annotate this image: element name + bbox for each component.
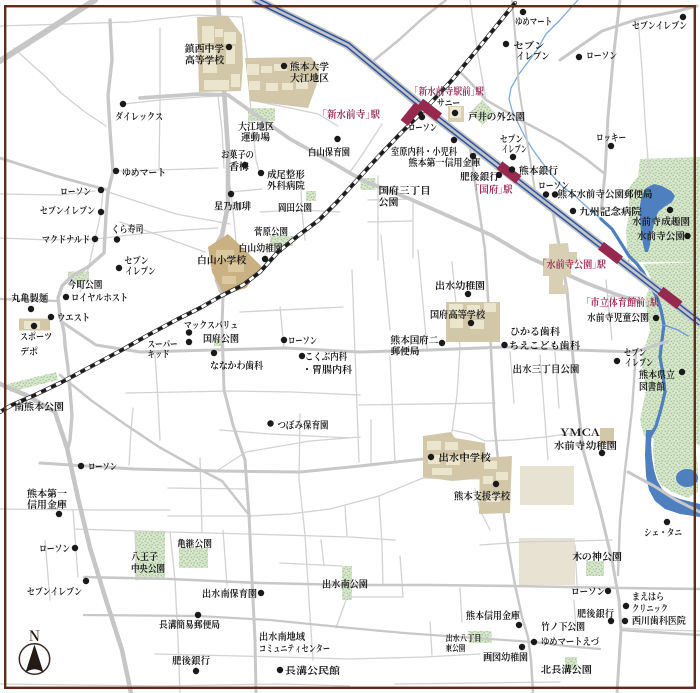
svg-text:ローソン: ローソン bbox=[571, 583, 605, 598]
svg-text:ゆめマート: ゆめマート bbox=[122, 164, 166, 179]
svg-text:｢水前寺公園｣駅: ｢水前寺公園｣駅 bbox=[542, 257, 606, 272]
svg-text:セブンイレブン: セブンイレブン bbox=[632, 17, 687, 32]
svg-text:ローソン: ローソン bbox=[39, 540, 70, 555]
svg-text:ゆめマートえづ: ゆめマートえづ bbox=[541, 633, 599, 648]
svg-text:ローソン: ローソン bbox=[60, 183, 91, 198]
svg-text:水前寺公園: 水前寺公園 bbox=[636, 228, 685, 243]
svg-text:郵便局: 郵便局 bbox=[391, 343, 420, 358]
svg-text:出水幼稚園: 出水幼稚園 bbox=[435, 277, 485, 292]
svg-text:東公園: 東公園 bbox=[446, 642, 466, 654]
svg-text:イレブン: イレブン bbox=[517, 48, 550, 63]
svg-text:西川歯科医院: 西川歯科医院 bbox=[632, 612, 686, 627]
svg-text:シェ・タニ: シェ・タニ bbox=[644, 524, 682, 539]
svg-text:長溝簡易郵便局: 長溝簡易郵便局 bbox=[158, 616, 220, 631]
svg-text:熊本信用金庫: 熊本信用金庫 bbox=[466, 607, 520, 622]
svg-text:白山保育園: 白山保育園 bbox=[308, 144, 350, 159]
svg-text:ロイヤルホスト: ロイヤルホスト bbox=[71, 289, 128, 304]
svg-text:木の神公園: 木の神公園 bbox=[572, 548, 622, 563]
svg-text:外科病院: 外科病院 bbox=[267, 177, 305, 192]
svg-text:長溝公民館: 長溝公民館 bbox=[284, 662, 340, 677]
svg-text:公園: 公園 bbox=[379, 194, 399, 209]
svg-text:スポーツ: スポーツ bbox=[20, 328, 52, 343]
svg-text:水前寺児童公園: 水前寺児童公園 bbox=[586, 309, 649, 324]
svg-text:デポ: デポ bbox=[20, 343, 38, 358]
svg-text:熊本第一信用金庫: 熊本第一信用金庫 bbox=[409, 154, 481, 169]
svg-text:香梅: 香梅 bbox=[229, 158, 249, 173]
svg-text:国府公園: 国府公園 bbox=[203, 330, 239, 345]
svg-text:イレブン: イレブン bbox=[502, 141, 527, 156]
svg-text:マクドナルド: マクドナルド bbox=[42, 231, 90, 246]
svg-text:中央公園: 中央公園 bbox=[131, 560, 165, 575]
svg-text:竹ノ下公園: 竹ノ下公園 bbox=[540, 618, 585, 633]
svg-text:つぼみ保育園: つぼみ保育園 bbox=[278, 417, 329, 432]
svg-text:N: N bbox=[29, 626, 41, 646]
svg-text:ローソン: ローソン bbox=[408, 119, 437, 134]
svg-text:図書館: 図書館 bbox=[639, 378, 665, 393]
svg-text:白山小学校: 白山小学校 bbox=[197, 252, 246, 267]
svg-text:サニー: サニー bbox=[437, 95, 460, 110]
svg-text:｢国府｣駅: ｢国府｣駅 bbox=[475, 182, 513, 197]
svg-text:キッド: キッド bbox=[148, 346, 170, 361]
svg-text:イレブン: イレブン bbox=[126, 263, 156, 278]
svg-text:熊本水前寺公園郵便局: 熊本水前寺公園郵便局 bbox=[558, 186, 653, 201]
svg-text:セブンイレブン: セブンイレブン bbox=[27, 583, 82, 598]
svg-text:菅原公園: 菅原公園 bbox=[254, 223, 288, 238]
svg-text:出水南公園: 出水南公園 bbox=[322, 576, 368, 591]
svg-text:ダイレックス: ダイレックス bbox=[115, 108, 163, 123]
svg-text:ローソン: ローソン bbox=[88, 458, 117, 473]
svg-text:出水中学校: 出水中学校 bbox=[439, 449, 491, 464]
svg-text:ローソン: ローソン bbox=[586, 47, 617, 62]
svg-text:信用金庫: 信用金庫 bbox=[27, 496, 67, 511]
svg-text:南熊本公園: 南熊本公園 bbox=[14, 398, 64, 413]
svg-text:ローソン: ローソン bbox=[288, 332, 317, 347]
svg-text:｢新水前寺｣駅: ｢新水前寺｣駅 bbox=[322, 107, 380, 122]
svg-text:星乃珈琲: 星乃珈琲 bbox=[214, 198, 251, 213]
svg-text:出水南保育園: 出水南保育園 bbox=[202, 585, 257, 600]
svg-text:ウエスト: ウエスト bbox=[57, 309, 90, 324]
svg-text:画図幼稚園: 画図幼稚園 bbox=[483, 649, 528, 664]
svg-text:高等学校: 高等学校 bbox=[185, 52, 224, 67]
svg-text:肥後銀行: 肥後銀行 bbox=[172, 652, 210, 667]
svg-text:国府高等学校: 国府高等学校 bbox=[430, 306, 485, 321]
svg-text:｢市立体育館前｣駅: ｢市立体育館前｣駅 bbox=[586, 295, 659, 310]
svg-text:肥後銀行: 肥後銀行 bbox=[460, 168, 499, 183]
svg-text:大江地区: 大江地区 bbox=[290, 70, 329, 85]
svg-text:ななかわ歯科: ななかわ歯科 bbox=[210, 357, 263, 372]
svg-text:戸井の外公園: 戸井の外公園 bbox=[468, 108, 525, 123]
svg-text:熊本支援学校: 熊本支援学校 bbox=[454, 488, 510, 503]
svg-text:セブンイレブン: セブンイレブン bbox=[40, 202, 95, 217]
svg-text:北長溝公園: 北長溝公園 bbox=[541, 661, 592, 676]
svg-text:運動場: 運動場 bbox=[241, 129, 270, 144]
svg-text:水前寺幼稚園: 水前寺幼稚園 bbox=[553, 437, 617, 452]
svg-text:・胃腸内科: ・胃腸内科 bbox=[302, 361, 352, 376]
svg-text:ひかる歯科: ひかる歯科 bbox=[510, 323, 560, 338]
svg-text:熊本銀行: 熊本銀行 bbox=[519, 162, 558, 177]
svg-text:亀継公園: 亀継公園 bbox=[177, 535, 212, 550]
svg-text:岡田公園: 岡田公園 bbox=[278, 199, 312, 214]
svg-text:くら寿司: くら寿司 bbox=[112, 221, 144, 236]
svg-text:コミュニティセンター: コミュニティセンター bbox=[259, 640, 330, 655]
svg-text:ゆめマート: ゆめマート bbox=[515, 13, 552, 28]
svg-text:出水三丁目公園: 出水三丁目公園 bbox=[513, 361, 580, 376]
svg-text:ちえこども歯科: ちえこども歯科 bbox=[509, 337, 580, 352]
svg-text:水前寺成趣園: 水前寺成趣園 bbox=[631, 213, 690, 228]
svg-text:ロッキー: ロッキー bbox=[596, 129, 626, 144]
svg-text:丸亀製麺: 丸亀製麺 bbox=[11, 290, 48, 305]
